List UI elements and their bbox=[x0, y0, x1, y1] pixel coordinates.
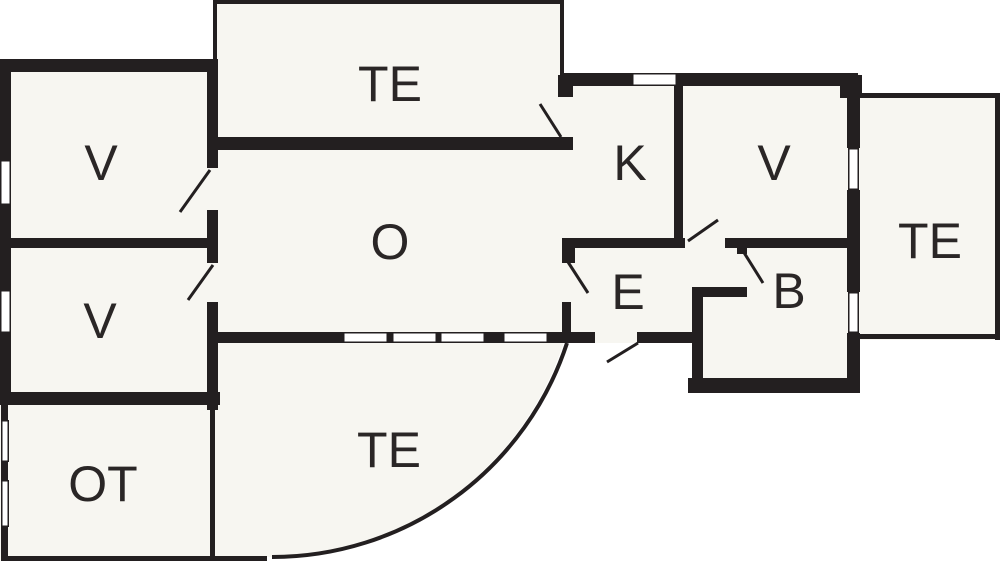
window-symbol bbox=[1, 291, 11, 333]
wall-thin bbox=[560, 0, 564, 76]
door-leaf bbox=[607, 343, 638, 362]
wall-thick bbox=[847, 190, 860, 292]
wall-thick bbox=[562, 238, 685, 248]
wall-thick bbox=[207, 59, 218, 168]
floor-plan-page: VVOTTEOKVEBTETE bbox=[0, 0, 1000, 564]
window-symbol bbox=[849, 293, 859, 333]
wall-thick bbox=[0, 59, 11, 160]
window-symbol bbox=[441, 333, 485, 343]
window-symbol bbox=[344, 333, 388, 343]
room-label-te-right: TE bbox=[898, 213, 962, 269]
room-label-v-top-left: V bbox=[84, 135, 118, 191]
wall-thick bbox=[562, 238, 575, 263]
wall-thick bbox=[207, 302, 218, 410]
room-label-e: E bbox=[611, 264, 644, 320]
wall-thick bbox=[637, 332, 700, 343]
window-symbol bbox=[2, 421, 9, 462]
room-label-te-top: TE bbox=[358, 56, 422, 112]
window-symbol bbox=[504, 333, 548, 343]
wall-thin bbox=[213, 0, 564, 4]
window-symbol bbox=[2, 481, 9, 527]
floor-plan-svg: VVOTTEOKVEBTETE bbox=[0, 0, 1000, 564]
wall-thick bbox=[688, 378, 858, 393]
wall-thick bbox=[692, 287, 747, 297]
room-label-o: O bbox=[371, 214, 410, 270]
wall-thick bbox=[0, 392, 220, 405]
wall-thin bbox=[995, 93, 1000, 340]
wall-thick bbox=[388, 332, 392, 343]
wall-thick bbox=[677, 73, 858, 86]
wall-thin bbox=[210, 405, 215, 561]
wall-thin bbox=[213, 0, 217, 60]
room-label-te-bottom: TE bbox=[357, 422, 421, 478]
room-label-v-right: V bbox=[757, 135, 791, 191]
wall-thick bbox=[207, 210, 218, 263]
room-label-b: B bbox=[772, 263, 805, 319]
wall-thick bbox=[560, 73, 632, 86]
room-label-k: K bbox=[613, 135, 646, 191]
window-symbol bbox=[1, 161, 11, 205]
room-label-ot: OT bbox=[68, 456, 137, 512]
wall-thick bbox=[548, 332, 595, 343]
window-symbol bbox=[393, 333, 437, 343]
wall-thick bbox=[562, 302, 571, 332]
wall-thin bbox=[1, 462, 8, 480]
wall-thick bbox=[215, 332, 343, 343]
wall-thin bbox=[858, 93, 1000, 98]
wall-thick bbox=[674, 86, 683, 248]
window-symbol bbox=[633, 74, 677, 86]
wall-thin bbox=[1, 527, 8, 560]
wall-thick bbox=[0, 238, 207, 248]
wall-thick bbox=[0, 59, 218, 72]
wall-thin bbox=[1, 405, 8, 422]
wall-thick bbox=[847, 75, 860, 148]
wall-thick bbox=[725, 238, 847, 248]
room-label-v-bottom-left: V bbox=[83, 293, 117, 349]
wall-thin bbox=[858, 334, 1000, 339]
wall-thick bbox=[213, 137, 573, 150]
window-symbol bbox=[849, 149, 859, 190]
wall-thick bbox=[437, 332, 440, 343]
wall-thick bbox=[485, 332, 503, 343]
wall-thin bbox=[1, 556, 267, 561]
